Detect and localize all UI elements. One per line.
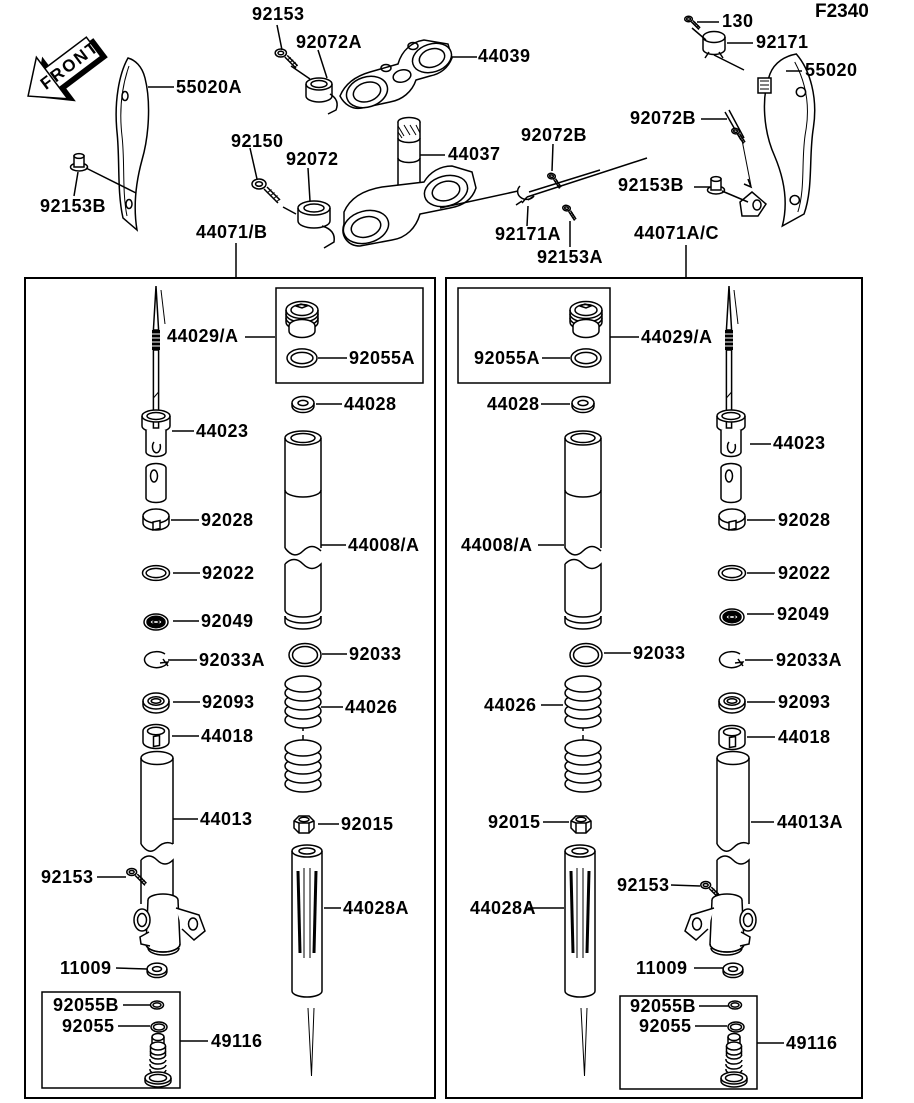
part-label-right-92033: 92033 bbox=[633, 643, 686, 663]
diagram-canvas: FRONT bbox=[0, 0, 914, 1103]
part-label-right-92153: 92153 bbox=[617, 875, 670, 895]
washer-11009-drawing bbox=[723, 963, 743, 977]
spring-44026-drawing bbox=[565, 676, 601, 792]
part-label-left-44013: 44013 bbox=[200, 809, 253, 829]
part-label-left-92153: 92153 bbox=[41, 867, 94, 887]
part-label-right-44023: 44023 bbox=[773, 433, 826, 453]
bolt-92150-drawing bbox=[252, 179, 280, 203]
part-label-left-44028A: 44028A bbox=[343, 898, 409, 918]
part-label-left-11009: 11009 bbox=[60, 958, 112, 978]
part-label-92153B-left: 92153B bbox=[40, 196, 106, 216]
part-label-left-49116: 49116 bbox=[211, 1031, 263, 1051]
oring-92055A-drawing bbox=[287, 349, 317, 367]
part-label-left-92055: 92055 bbox=[62, 1016, 115, 1036]
part-label-92072B-right: 92072B bbox=[630, 108, 696, 128]
bolt-92153-top-drawing bbox=[275, 49, 297, 68]
ring-92028-drawing bbox=[143, 509, 169, 530]
oring-92055-drawing bbox=[151, 1022, 167, 1032]
snap-ring-92033A-drawing bbox=[720, 652, 743, 668]
washer-44028-drawing bbox=[292, 397, 314, 413]
ring-92028-drawing bbox=[719, 509, 745, 530]
oil-seal-92049-drawing bbox=[720, 609, 744, 625]
inner-tube-44013-drawing bbox=[141, 752, 173, 905]
part-label-right-92093: 92093 bbox=[778, 692, 831, 712]
part-label-left-44026: 44026 bbox=[345, 697, 398, 717]
spring-44026-drawing bbox=[285, 676, 321, 792]
part-label-right-92055A: 92055A bbox=[474, 348, 540, 368]
outer-tube-drawing bbox=[565, 431, 601, 629]
damper-rod-44028A-drawing bbox=[292, 845, 322, 1076]
part-label-left-92015: 92015 bbox=[341, 814, 394, 834]
part-label-44039: 44039 bbox=[478, 46, 531, 66]
part-label-right-11009: 11009 bbox=[636, 958, 688, 978]
bushing-44018-drawing bbox=[143, 725, 169, 749]
snap-ring-92033A-drawing bbox=[145, 652, 168, 668]
part-label-right-92049: 92049 bbox=[777, 604, 830, 624]
fork-guard-right-drawing bbox=[740, 54, 815, 226]
part-label-92171A: 92171A bbox=[495, 224, 561, 244]
fork-cap-drawing bbox=[570, 302, 602, 338]
oring-92055-drawing bbox=[728, 1022, 744, 1032]
outer-tube-drawing bbox=[285, 431, 321, 629]
steering-stem-drawing bbox=[340, 118, 476, 249]
axle-holder-drawing bbox=[134, 894, 205, 955]
part-label-left-44028: 44028 bbox=[344, 394, 397, 414]
part-label-right-44028: 44028 bbox=[487, 394, 540, 414]
washer-44028-drawing bbox=[572, 397, 594, 413]
oring-92033-drawing bbox=[289, 644, 321, 667]
part-label-left-92055A: 92055A bbox=[349, 348, 415, 368]
screw-130-drawing bbox=[685, 16, 700, 29]
part-label-55020A: 55020A bbox=[176, 77, 242, 97]
part-label-right-49116: 49116 bbox=[786, 1033, 838, 1053]
part-label-right-44013A: 44013A bbox=[777, 812, 843, 832]
piston-rod-needle-drawing bbox=[725, 286, 738, 428]
part-label-right-92028: 92028 bbox=[778, 510, 831, 530]
holder-92072-drawing bbox=[298, 201, 334, 248]
part-label-left-92022: 92022 bbox=[202, 563, 255, 583]
fork-cap-drawing bbox=[286, 302, 318, 338]
part-label-92072A: 92072A bbox=[296, 32, 362, 52]
dust-seal-92093-drawing bbox=[143, 693, 169, 713]
oring-92055B-drawing bbox=[151, 1001, 164, 1009]
axle-holder-drawing bbox=[685, 894, 756, 955]
part-label-left-92033A: 92033A bbox=[199, 650, 265, 670]
nut-92015-drawing bbox=[571, 816, 591, 833]
left-fork-parts bbox=[127, 286, 322, 1087]
piston-rod-needle-drawing bbox=[152, 286, 165, 428]
part-label-92072: 92072 bbox=[286, 149, 339, 169]
part-label-right-92015: 92015 bbox=[488, 812, 541, 832]
diagram-code: F2340 bbox=[815, 1, 869, 22]
bolt-92153-drawing bbox=[127, 869, 147, 886]
fork-guard-left-drawing bbox=[116, 58, 148, 230]
part-label-44071B: 44071/B bbox=[196, 222, 268, 242]
valve-49116-drawing bbox=[145, 1034, 171, 1088]
part-label-left-92055B: 92055B bbox=[53, 995, 119, 1015]
nut-92015-drawing bbox=[294, 816, 314, 833]
bushing-44018-drawing bbox=[719, 726, 745, 750]
valve-49116-drawing bbox=[721, 1034, 747, 1088]
part-label-right-44028A: 44028A bbox=[470, 898, 536, 918]
part-label-left-44023: 44023 bbox=[196, 421, 249, 441]
part-label-right-92022: 92022 bbox=[778, 563, 831, 583]
part-label-right-44008A: 44008/A bbox=[461, 535, 533, 555]
holder-92072A-drawing bbox=[306, 78, 337, 114]
part-label-92072B-mid: 92072B bbox=[521, 125, 587, 145]
oring-92022-drawing bbox=[143, 566, 170, 581]
rod-92072B-right-drawing bbox=[725, 110, 751, 187]
part-label-left-92033: 92033 bbox=[349, 644, 402, 664]
inner-tube-44013A-drawing bbox=[717, 752, 749, 905]
part-label-left-44018: 44018 bbox=[201, 726, 254, 746]
oring-92055B-drawing bbox=[729, 1001, 742, 1009]
clamp-92171-drawing bbox=[703, 32, 725, 59]
part-label-44071AC: 44071A/C bbox=[634, 223, 719, 243]
part-label-55020: 55020 bbox=[805, 60, 858, 80]
part-label-right-92055: 92055 bbox=[639, 1016, 692, 1036]
part-label-left-44008A: 44008/A bbox=[348, 535, 420, 555]
part-label-92153A: 92153A bbox=[537, 247, 603, 267]
oring-92033-drawing bbox=[570, 644, 602, 667]
part-label-left-92028: 92028 bbox=[201, 510, 254, 530]
part-label-92150: 92150 bbox=[231, 131, 284, 151]
part-label-right-44029A: 44029/A bbox=[641, 327, 713, 347]
part-label-92153-top: 92153 bbox=[252, 4, 305, 24]
part-label-right-44026: 44026 bbox=[484, 695, 537, 715]
nut-92153B-left-drawing bbox=[71, 154, 88, 171]
washer-11009-drawing bbox=[147, 963, 167, 977]
part-label-44037: 44037 bbox=[448, 144, 501, 164]
part-label-130: 130 bbox=[722, 11, 754, 31]
part-label-left-44029A: 44029/A bbox=[167, 326, 239, 346]
part-label-left-92049: 92049 bbox=[201, 611, 254, 631]
parts-diagram-page: FRONT bbox=[0, 0, 914, 1103]
part-label-right-92055B: 92055B bbox=[630, 996, 696, 1016]
part-label-left-92093: 92093 bbox=[202, 692, 255, 712]
screw-92153A-drawing bbox=[561, 205, 579, 221]
part-label-92171: 92171 bbox=[756, 32, 809, 52]
oring-92022-drawing bbox=[719, 566, 746, 581]
oil-seal-92049-drawing bbox=[144, 614, 168, 630]
part-label-92153B-right: 92153B bbox=[618, 175, 684, 195]
part-label-right-92033A: 92033A bbox=[776, 650, 842, 670]
damper-rod-44028A-drawing bbox=[565, 845, 595, 1076]
part-label-right-44018: 44018 bbox=[778, 727, 831, 747]
bolt-92072B-right-drawing bbox=[730, 128, 748, 144]
oring-92055A-drawing bbox=[571, 349, 601, 367]
front-arrow: FRONT bbox=[12, 23, 117, 122]
dust-seal-92093-drawing bbox=[719, 693, 745, 713]
